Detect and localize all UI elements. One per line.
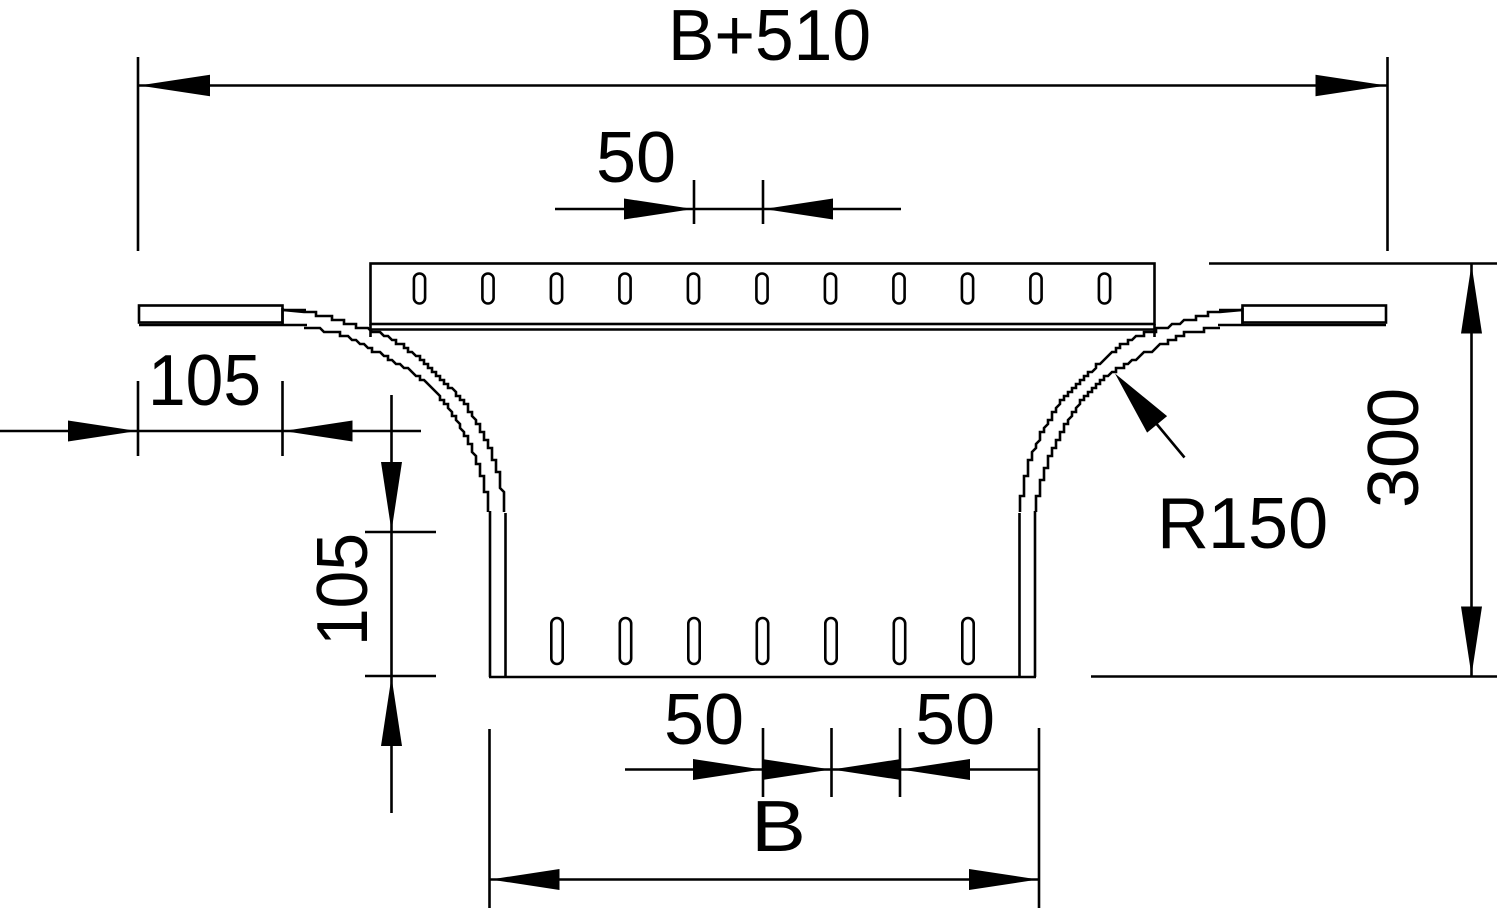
svg-text:B: B: [751, 787, 806, 867]
svg-text:105: 105: [148, 341, 261, 421]
svg-text:150: 150: [1208, 484, 1328, 564]
svg-text:300: 300: [1354, 388, 1434, 508]
svg-text:B+510: B+510: [668, 0, 871, 76]
svg-text:50: 50: [596, 118, 676, 198]
svg-text:R: R: [1157, 484, 1209, 564]
svg-text:50: 50: [664, 680, 744, 760]
svg-text:105: 105: [303, 533, 383, 646]
svg-text:50: 50: [915, 680, 995, 760]
